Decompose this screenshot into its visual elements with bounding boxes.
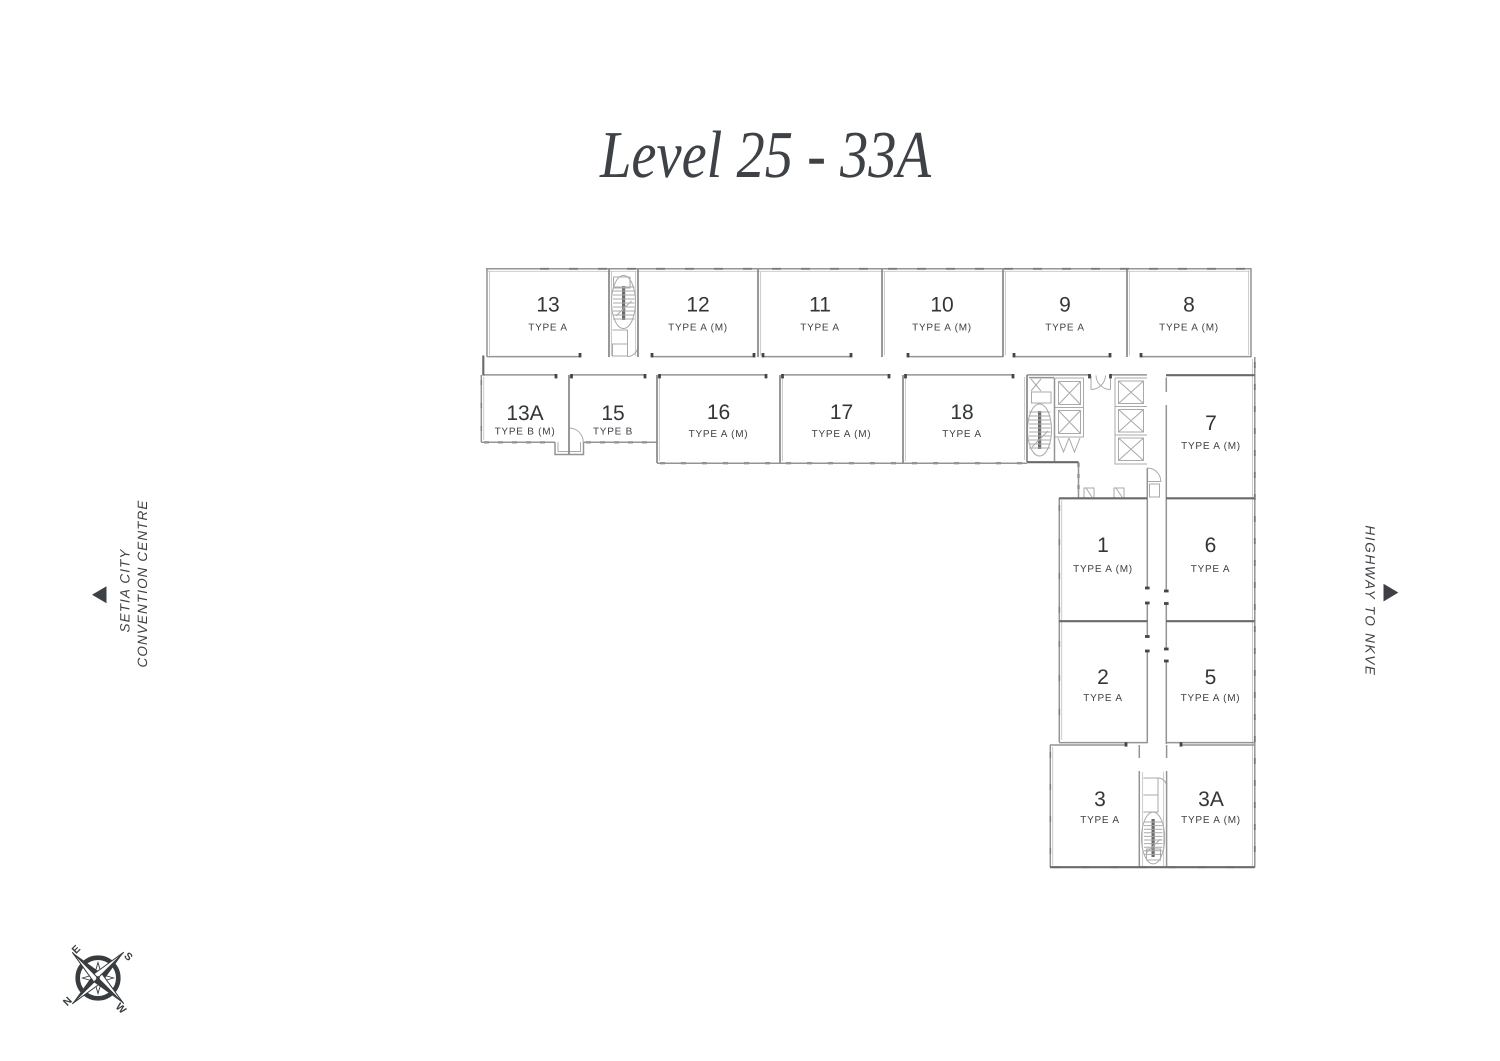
svg-text:7: 7 (1205, 412, 1217, 435)
svg-text:6: 6 (1205, 534, 1217, 557)
svg-text:HIGHWAY TO NKVE: HIGHWAY TO NKVE (1363, 525, 1378, 676)
svg-text:TYPE A: TYPE A (942, 429, 982, 440)
svg-text:TYPE A (M): TYPE A (M) (812, 429, 872, 440)
svg-text:9: 9 (1059, 294, 1071, 317)
svg-text:SETIA CITY: SETIA CITY (118, 548, 133, 632)
svg-text:11: 11 (809, 294, 831, 317)
svg-text:TYPE A (M): TYPE A (M) (1181, 815, 1241, 826)
svg-text:13A: 13A (506, 402, 543, 425)
svg-text:TYPE A: TYPE A (1045, 323, 1085, 334)
svg-text:TYPE A: TYPE A (800, 323, 840, 334)
svg-text:TYPE A: TYPE A (1191, 564, 1231, 575)
svg-text:15: 15 (601, 402, 624, 425)
svg-text:CONVENTION CENTRE: CONVENTION CENTRE (135, 500, 150, 668)
svg-text:5: 5 (1205, 666, 1217, 689)
svg-text:TYPE A (M): TYPE A (M) (668, 323, 728, 334)
svg-text:1: 1 (1097, 534, 1109, 557)
svg-text:12: 12 (686, 294, 709, 317)
svg-text:16: 16 (707, 401, 730, 424)
svg-text:3A: 3A (1198, 788, 1224, 811)
svg-text:13: 13 (536, 294, 559, 317)
svg-text:TYPE A: TYPE A (1083, 693, 1123, 704)
svg-text:3: 3 (1094, 788, 1106, 811)
svg-text:TYPE A (M): TYPE A (M) (912, 323, 972, 334)
svg-text:TYPE B (M): TYPE B (M) (495, 427, 556, 438)
svg-text:TYPE A (M): TYPE A (M) (1181, 441, 1241, 452)
svg-text:8: 8 (1183, 294, 1195, 317)
svg-text:TYPE B: TYPE B (593, 427, 633, 438)
svg-text:TYPE A: TYPE A (1080, 815, 1120, 826)
svg-text:18: 18 (950, 401, 973, 424)
svg-text:TYPE A (M): TYPE A (M) (689, 429, 749, 440)
svg-text:TYPE A (M): TYPE A (M) (1181, 693, 1241, 704)
svg-text:17: 17 (830, 401, 853, 424)
svg-text:2: 2 (1097, 666, 1109, 689)
svg-text:TYPE A (M): TYPE A (M) (1073, 564, 1133, 575)
svg-text:10: 10 (930, 294, 953, 317)
svg-text:TYPE A (M): TYPE A (M) (1159, 323, 1219, 334)
svg-text:TYPE A: TYPE A (528, 323, 568, 334)
svg-text:Level 25 - 33A: Level 25 - 33A (599, 118, 932, 192)
